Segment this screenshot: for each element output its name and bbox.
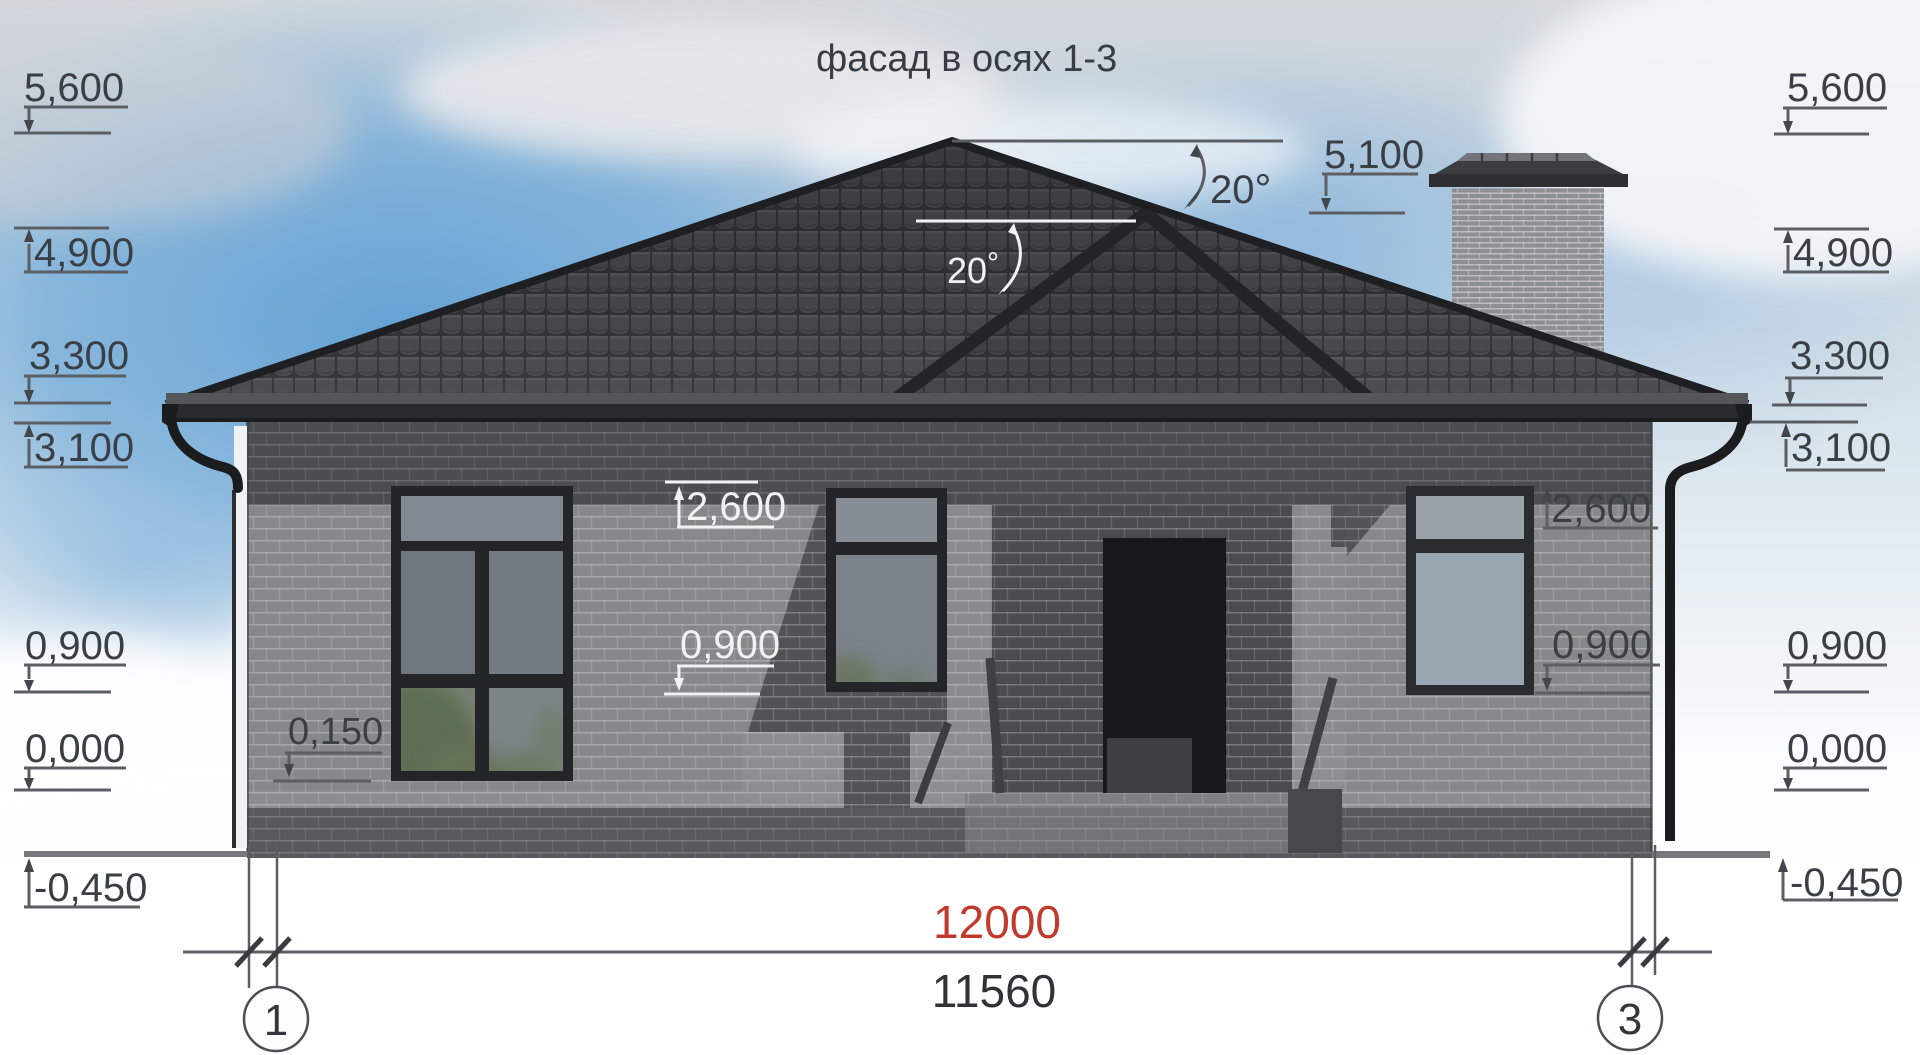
- svg-text:0,000: 0,000: [25, 727, 125, 771]
- svg-text:3,300: 3,300: [1790, 334, 1890, 378]
- svg-text:-0,450: -0,450: [1790, 861, 1903, 905]
- svg-text:3,300: 3,300: [29, 334, 129, 378]
- svg-text:5,100: 5,100: [1324, 133, 1424, 177]
- svg-text:2,600: 2,600: [686, 485, 786, 529]
- svg-text:0,900: 0,900: [1552, 623, 1652, 667]
- svg-text:-0,450: -0,450: [34, 866, 147, 910]
- svg-text:5,600: 5,600: [1787, 66, 1887, 110]
- svg-text:1: 1: [264, 996, 288, 1045]
- svg-text:3,100: 3,100: [34, 426, 134, 470]
- svg-text:3: 3: [1618, 995, 1642, 1044]
- svg-text:0,900: 0,900: [1787, 624, 1887, 668]
- svg-text:20°: 20°: [1210, 165, 1271, 212]
- svg-text:фасад в осях 1-3: фасад в осях 1-3: [816, 38, 1117, 80]
- svg-text:12000: 12000: [933, 896, 1061, 948]
- svg-text:5,600: 5,600: [24, 66, 124, 110]
- svg-text:11560: 11560: [932, 965, 1057, 1017]
- svg-text:0,150: 0,150: [288, 711, 383, 753]
- svg-text:0,900: 0,900: [25, 624, 125, 668]
- svg-text:3,100: 3,100: [1791, 426, 1891, 470]
- svg-text:0,000: 0,000: [1787, 727, 1887, 771]
- svg-text:4,900: 4,900: [34, 231, 134, 275]
- svg-text:4,900: 4,900: [1793, 231, 1893, 275]
- svg-text:0,900: 0,900: [680, 623, 780, 667]
- svg-text:2,600: 2,600: [1551, 487, 1651, 531]
